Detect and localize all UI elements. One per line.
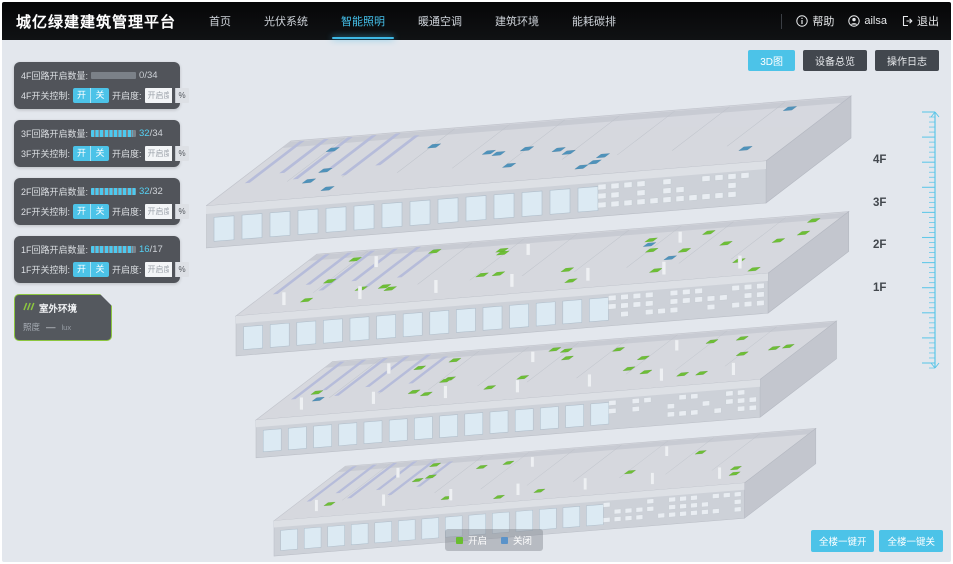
switch-label-1f: 1F开关控制: [21,263,70,276]
dim-input-4f[interactable] [145,88,172,103]
nav-item-building-env[interactable]: 建筑环境 [492,11,542,31]
illuminance-value: — [46,322,56,333]
nav-item-energy-carbon[interactable]: 能耗碳排 [569,11,619,31]
circuit-count-label-4f: 4F回路开启数量: [21,69,88,82]
operation-log-button[interactable]: 操作日志 [875,50,939,71]
off-button-2f[interactable]: 关 [91,204,109,219]
bulk-controls: 全楼一键开全楼一键关 [811,530,943,552]
status-legend: 开启 关闭 [445,529,543,551]
app-title: 城亿绿建建筑管理平台 [16,11,176,32]
floor-scale-label-2f[interactable]: 2F [873,239,886,251]
all-on-button[interactable]: 全楼一键开 [811,530,875,552]
device-overview-button[interactable]: 设备总览 [803,50,867,71]
view-3d-button[interactable]: 3D图 [748,50,795,71]
help-label: 帮助 [812,13,834,29]
floor-scale-label-3f[interactable]: 3F [873,197,886,209]
logout-button[interactable]: 退出 [901,13,939,29]
circuit-count-label-2f: 2F回路开启数量: [21,185,88,198]
percent-button-1f[interactable]: % [175,262,189,277]
legend-off: 关闭 [501,533,532,547]
circuit-count-label-1f: 1F回路开启数量: [21,243,88,256]
outdoor-env-icon [23,302,35,314]
circuit-progress-2f [91,188,136,195]
legend-off-swatch [501,537,508,544]
switch-group-4f: 开关 [73,88,109,103]
nav-item-smart-lighting[interactable]: 智能照明 [338,11,388,31]
legend-on: 开启 [456,533,487,547]
app-window: 城亿绿建建筑管理平台 首页光伏系统智能照明暖通空调建筑环境能耗碳排 帮助 ail… [0,0,953,564]
switch-group-3f: 开关 [73,146,109,161]
dim-label-2f: 开启度: [112,205,142,218]
help-button[interactable]: 帮助 [796,13,834,29]
main-nav: 首页光伏系统智能照明暖通空调建筑环境能耗碳排 [206,11,619,31]
on-button-3f[interactable]: 开 [73,146,91,161]
floor-control-panels: 4F回路开启数量:0/344F开关控制:开关开启度:%3F回路开启数量:32/3… [14,62,180,341]
legend-off-label: 关闭 [513,533,532,547]
floor-panel-2f: 2F回路开启数量:32/322F开关控制:开关开启度:% [14,178,180,225]
off-button-3f[interactable]: 关 [91,146,109,161]
off-button-4f[interactable]: 关 [91,88,109,103]
switch-label-4f: 4F开关控制: [21,89,70,102]
floor-scale: 4F3F2F1F [871,102,943,392]
circuit-count-value-3f: 32/34 [139,128,163,139]
dim-input-2f[interactable] [145,204,172,219]
all-off-button[interactable]: 全楼一键关 [879,530,943,552]
floor-ruler [909,102,943,380]
switch-group-1f: 开关 [73,262,109,277]
illuminance-unit: lux [62,323,72,332]
circuit-count-value-4f: 0/34 [139,70,158,81]
circuit-progress-3f [91,130,136,137]
legend-on-swatch [456,537,463,544]
circuit-count-value-2f: 32/32 [139,186,163,197]
dim-label-1f: 开启度: [112,263,142,276]
floor-panel-3f: 3F回路开启数量:32/343F开关控制:开关开启度:% [14,120,180,167]
nav-item-hvac[interactable]: 暖通空调 [415,11,465,31]
view-switcher: 3D图设备总览操作日志 [748,50,939,71]
building-3d-view[interactable] [206,86,890,560]
logout-label: 退出 [917,13,939,29]
percent-button-2f[interactable]: % [175,204,189,219]
dim-input-1f[interactable] [145,262,172,277]
info-icon [796,15,808,27]
illuminance-label: 照度 [23,321,40,333]
user-name: ailsa [864,15,887,27]
on-button-1f[interactable]: 开 [73,262,91,277]
percent-button-3f[interactable]: % [175,146,189,161]
circuit-count-label-3f: 3F回路开启数量: [21,127,88,140]
legend-on-label: 开启 [468,533,487,547]
switch-group-2f: 开关 [73,204,109,219]
top-navbar: 城亿绿建建筑管理平台 首页光伏系统智能照明暖通空调建筑环境能耗碳排 帮助 ail… [2,2,951,40]
on-button-2f[interactable]: 开 [73,204,91,219]
nav-item-pv-system[interactable]: 光伏系统 [261,11,311,31]
dim-label-4f: 开启度: [112,89,142,102]
floor-panel-4f: 4F回路开启数量:0/344F开关控制:开关开启度:% [14,62,180,109]
dim-input-3f[interactable] [145,146,172,161]
off-button-1f[interactable]: 关 [91,262,109,277]
nav-divider [781,14,782,29]
user-menu[interactable]: ailsa [848,15,887,27]
navbar-right: 帮助 ailsa 退出 [781,13,939,29]
outdoor-env-panel: 室外环境照度—lux [14,294,112,341]
switch-label-3f: 3F开关控制: [21,147,70,160]
user-avatar-icon [848,15,860,27]
circuit-count-value-1f: 16/17 [139,244,163,255]
switch-label-2f: 2F开关控制: [21,205,70,218]
floor-scale-label-1f[interactable]: 1F [873,282,886,294]
circuit-progress-1f [91,246,136,253]
outdoor-env-title: 室外环境 [39,301,77,315]
dim-label-3f: 开启度: [112,147,142,160]
on-button-4f[interactable]: 开 [73,88,91,103]
floor-scale-label-4f[interactable]: 4F [873,154,886,166]
floor-panel-1f: 1F回路开启数量:16/171F开关控制:开关开启度:% [14,236,180,283]
logout-icon [901,15,913,27]
percent-button-4f[interactable]: % [175,88,189,103]
nav-item-home[interactable]: 首页 [206,11,234,31]
circuit-progress-4f [91,72,136,79]
